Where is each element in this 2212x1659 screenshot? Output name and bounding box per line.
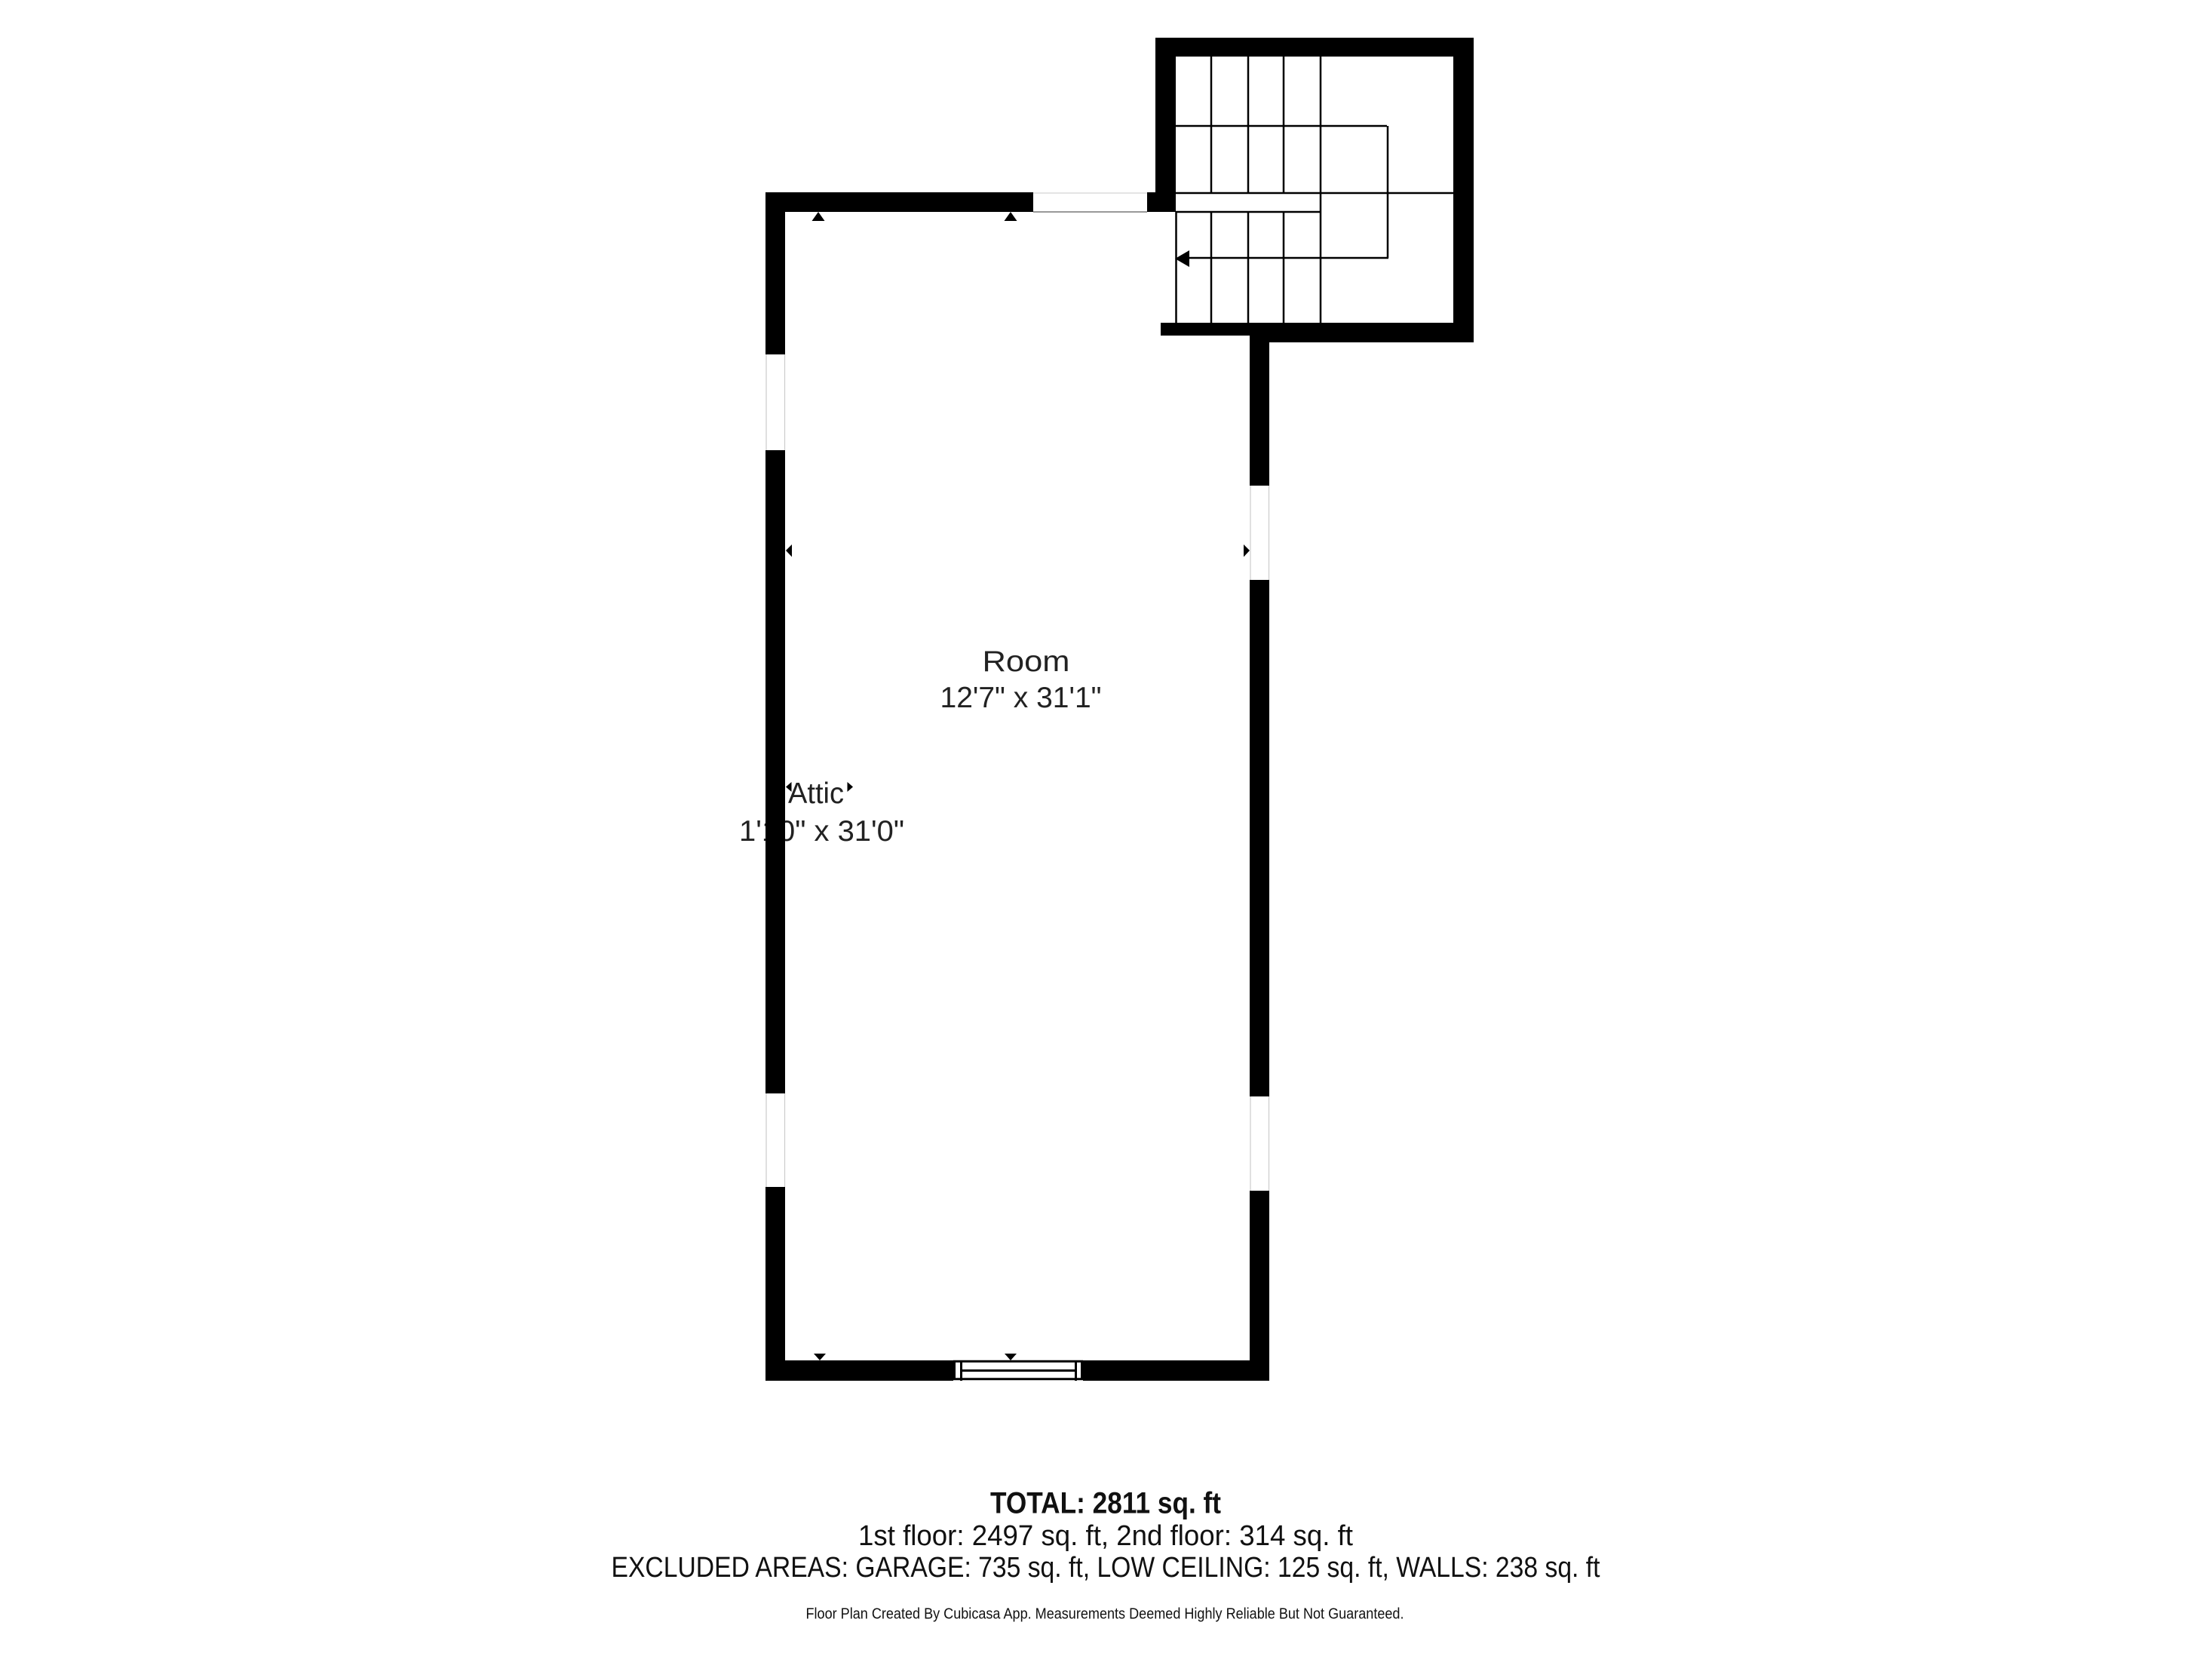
svg-text:Room: Room — [983, 646, 1070, 678]
svg-text:Floor Plan Created By Cubicasa: Floor Plan Created By Cubicasa App. Meas… — [806, 1605, 1404, 1623]
svg-text:TOTAL: 2811 sq. ft: TOTAL: 2811 sq. ft — [990, 1487, 1221, 1520]
svg-text:1'10" x 31'0": 1'10" x 31'0" — [739, 815, 904, 848]
svg-text:12'7" x 31'1": 12'7" x 31'1" — [940, 682, 1102, 714]
svg-text:1st floor: 2497 sq. ft, 2nd fl: 1st floor: 2497 sq. ft, 2nd floor: 314 s… — [858, 1520, 1353, 1552]
svg-text:Attic: Attic — [788, 777, 844, 810]
svg-text:EXCLUDED AREAS: GARAGE: 735 sq: EXCLUDED AREAS: GARAGE: 735 sq. ft, LOW … — [612, 1552, 1600, 1584]
